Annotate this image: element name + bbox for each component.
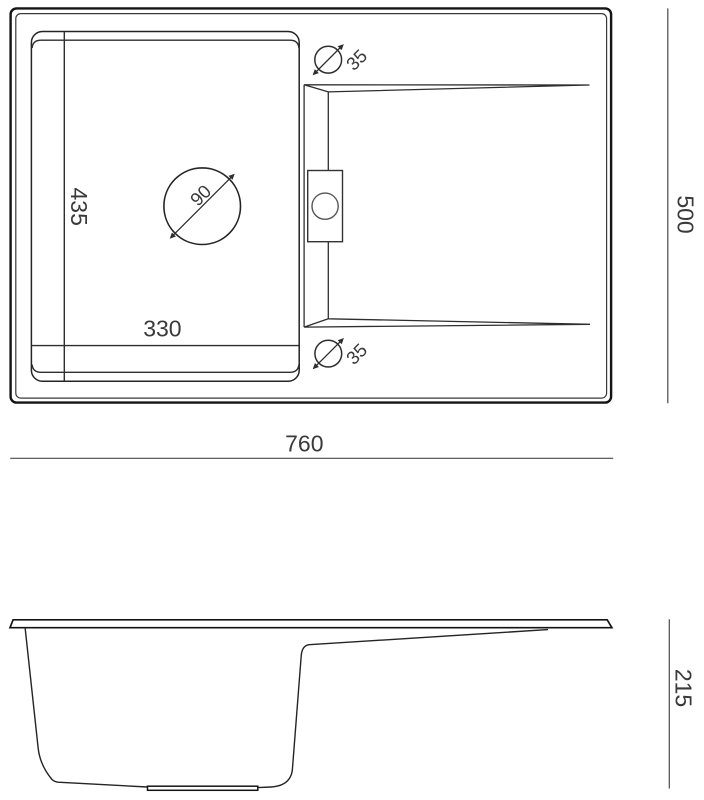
svg-text:330: 330 bbox=[143, 316, 181, 342]
svg-text:500: 500 bbox=[672, 195, 698, 233]
svg-text:215: 215 bbox=[670, 669, 696, 707]
svg-text:435: 435 bbox=[66, 188, 92, 226]
svg-text:760: 760 bbox=[285, 431, 323, 457]
